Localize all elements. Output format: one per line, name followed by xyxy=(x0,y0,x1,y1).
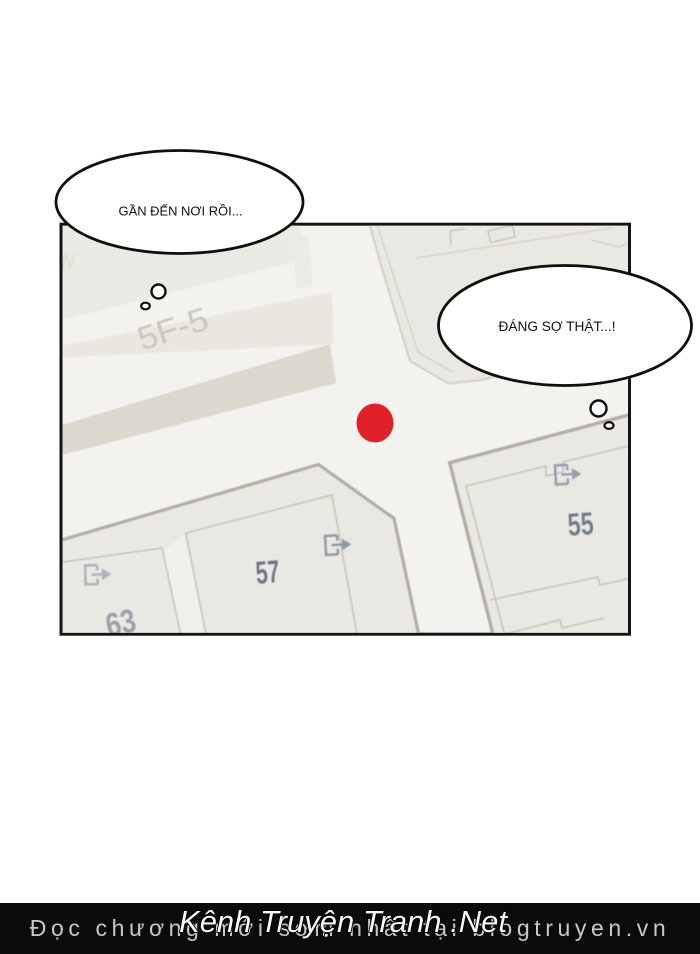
svg-text:55: 55 xyxy=(566,505,594,543)
svg-text:Kênh Truyện Tranh .Net: Kênh Truyện Tranh .Net xyxy=(179,904,508,939)
svg-text:GẦN ĐẾN NƠI RỒI...: GẦN ĐẾN NƠI RỒI... xyxy=(119,204,243,219)
svg-text:ĐÁNG SỢ THẬT...!: ĐÁNG SỢ THẬT...! xyxy=(499,319,616,334)
svg-text:57: 57 xyxy=(254,553,281,591)
